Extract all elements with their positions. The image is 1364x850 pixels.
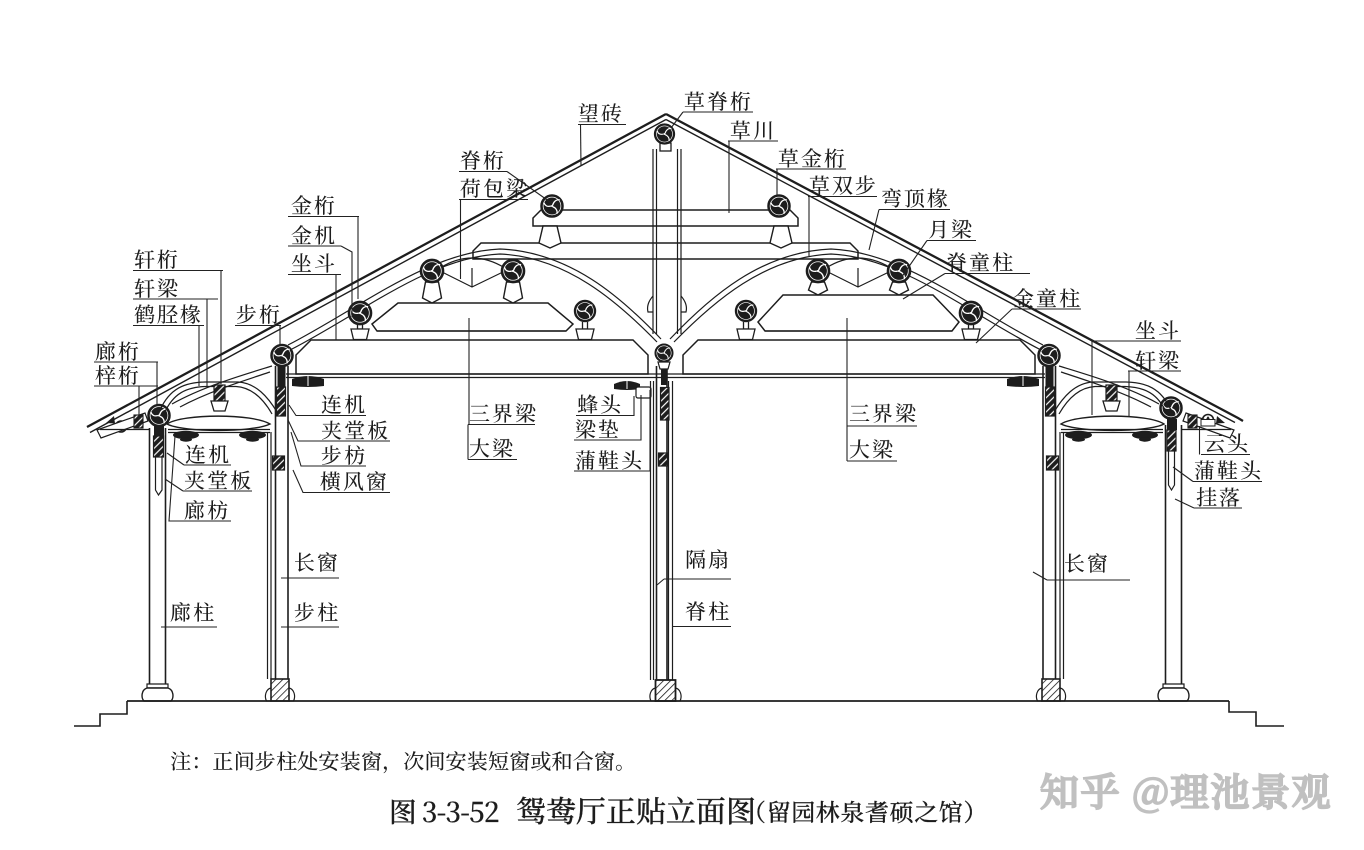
svg-text:步桁: 步桁 xyxy=(236,299,282,329)
svg-text:金桁: 金桁 xyxy=(291,190,337,220)
svg-text:坐斗: 坐斗 xyxy=(291,248,337,278)
svg-text:蒲鞋头: 蒲鞋头 xyxy=(1194,455,1263,485)
svg-text:隔扇: 隔扇 xyxy=(685,544,731,574)
svg-text:月梁: 月梁 xyxy=(928,214,974,244)
svg-text:知乎 @理池景观: 知乎 @理池景观 xyxy=(1040,762,1332,818)
svg-text:弯顶椽: 弯顶椽 xyxy=(881,183,950,213)
svg-text:脊柱: 脊柱 xyxy=(685,596,731,626)
svg-text:横风窗: 横风窗 xyxy=(320,466,389,496)
svg-text:云头: 云头 xyxy=(1204,428,1250,458)
svg-text:三界梁: 三界梁 xyxy=(849,398,918,428)
svg-text:廊柱: 廊柱 xyxy=(170,597,216,627)
svg-text:长窗: 长窗 xyxy=(1064,548,1110,578)
svg-text:大梁: 大梁 xyxy=(849,434,895,464)
svg-text:草双步: 草双步 xyxy=(809,170,878,200)
svg-text:轩桁: 轩桁 xyxy=(134,244,180,274)
svg-text:大梁: 大梁 xyxy=(469,433,515,463)
svg-text:脊童柱: 脊童柱 xyxy=(946,247,1015,277)
svg-text:脊桁: 脊桁 xyxy=(460,145,506,175)
svg-text:图 3-3-52: 图 3-3-52 xyxy=(389,790,499,830)
svg-text:鸳鸯厅正贴立面图: 鸳鸯厅正贴立面图 xyxy=(516,787,756,831)
svg-text:注：正间步柱处安装窗，次间安装短窗或和合窗。: 注：正间步柱处安装窗，次间安装短窗或和合窗。 xyxy=(170,746,636,776)
svg-text:望砖: 望砖 xyxy=(578,98,624,128)
svg-text:长窗: 长窗 xyxy=(294,547,340,577)
svg-text:荷包梁: 荷包梁 xyxy=(460,173,529,203)
svg-text:步柱: 步柱 xyxy=(294,597,340,627)
svg-text:鹤胫椽: 鹤胫椽 xyxy=(134,299,203,329)
svg-text:（留园林泉耆硕之馆）: （留园林泉耆硕之馆） xyxy=(742,793,988,828)
svg-text:三界梁: 三界梁 xyxy=(469,398,538,428)
